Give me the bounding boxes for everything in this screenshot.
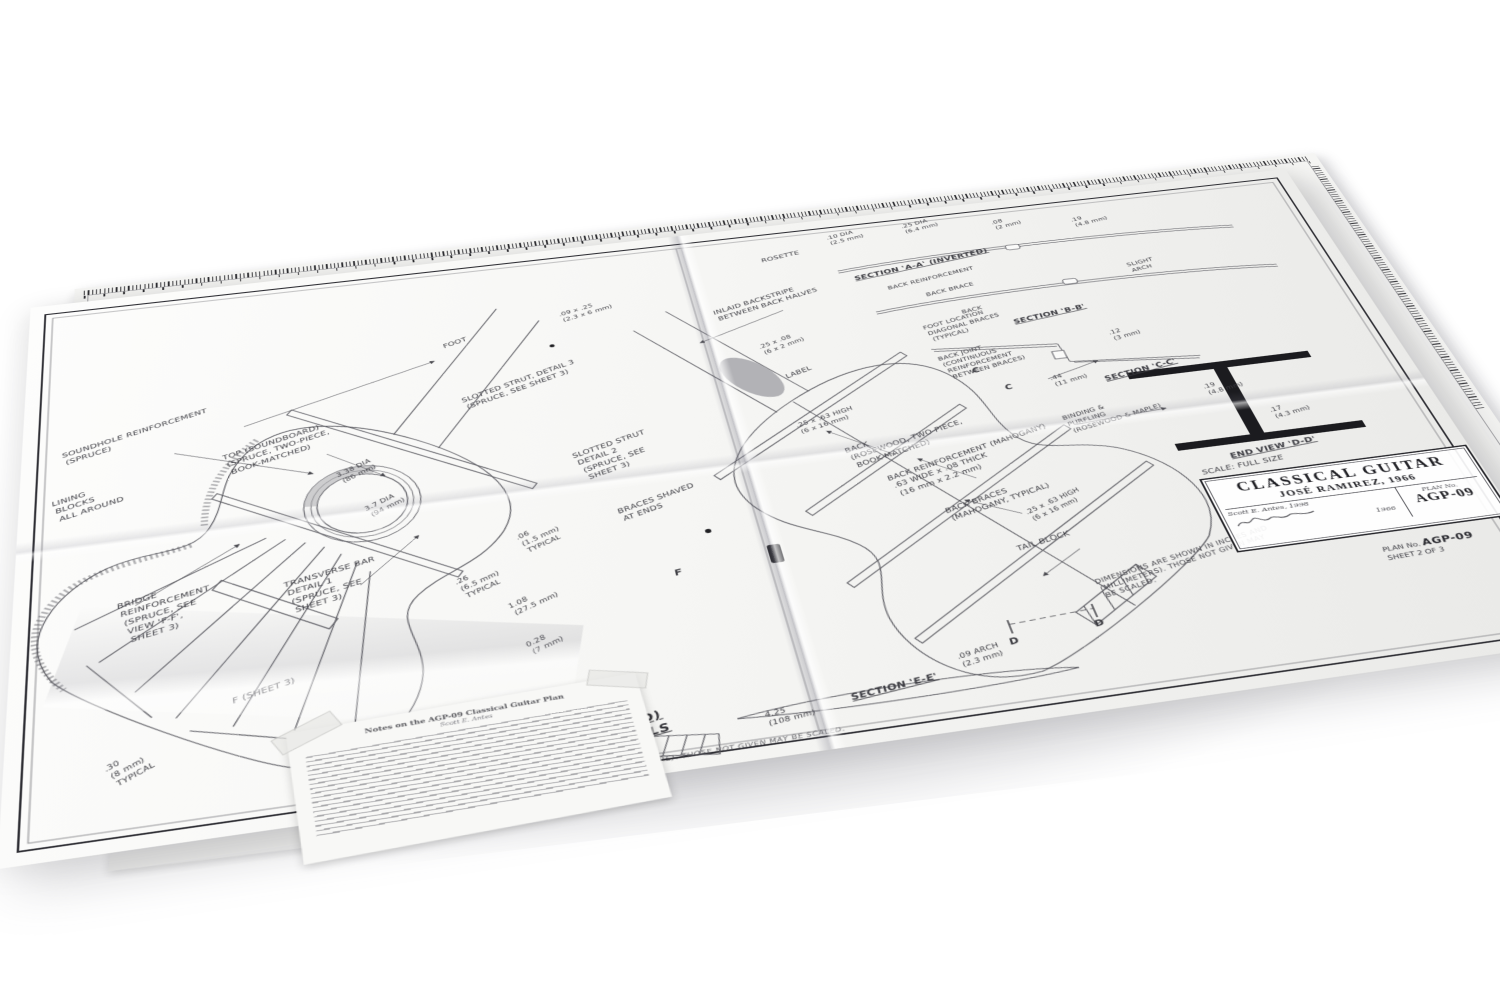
tape-piece-right [586, 670, 648, 689]
photo-scene: PLAN No. AGP-09 SHEET 3 OF 3 [0, 0, 1500, 1000]
title-block-date: 1966 [1374, 505, 1397, 514]
blueprint-sheet-stack: PLAN No. AGP-09 SHEET 3 OF 3 [0, 169, 1500, 869]
heel-shading [708, 351, 795, 404]
photo-of-guitar-blueprint: { "title_block": { "title": "CLASSICAL G… [0, 0, 1500, 1000]
upper-harmonic-bar [287, 410, 537, 489]
section-aa-drawing [835, 220, 1234, 273]
lower-harmonic-bar [212, 494, 463, 577]
